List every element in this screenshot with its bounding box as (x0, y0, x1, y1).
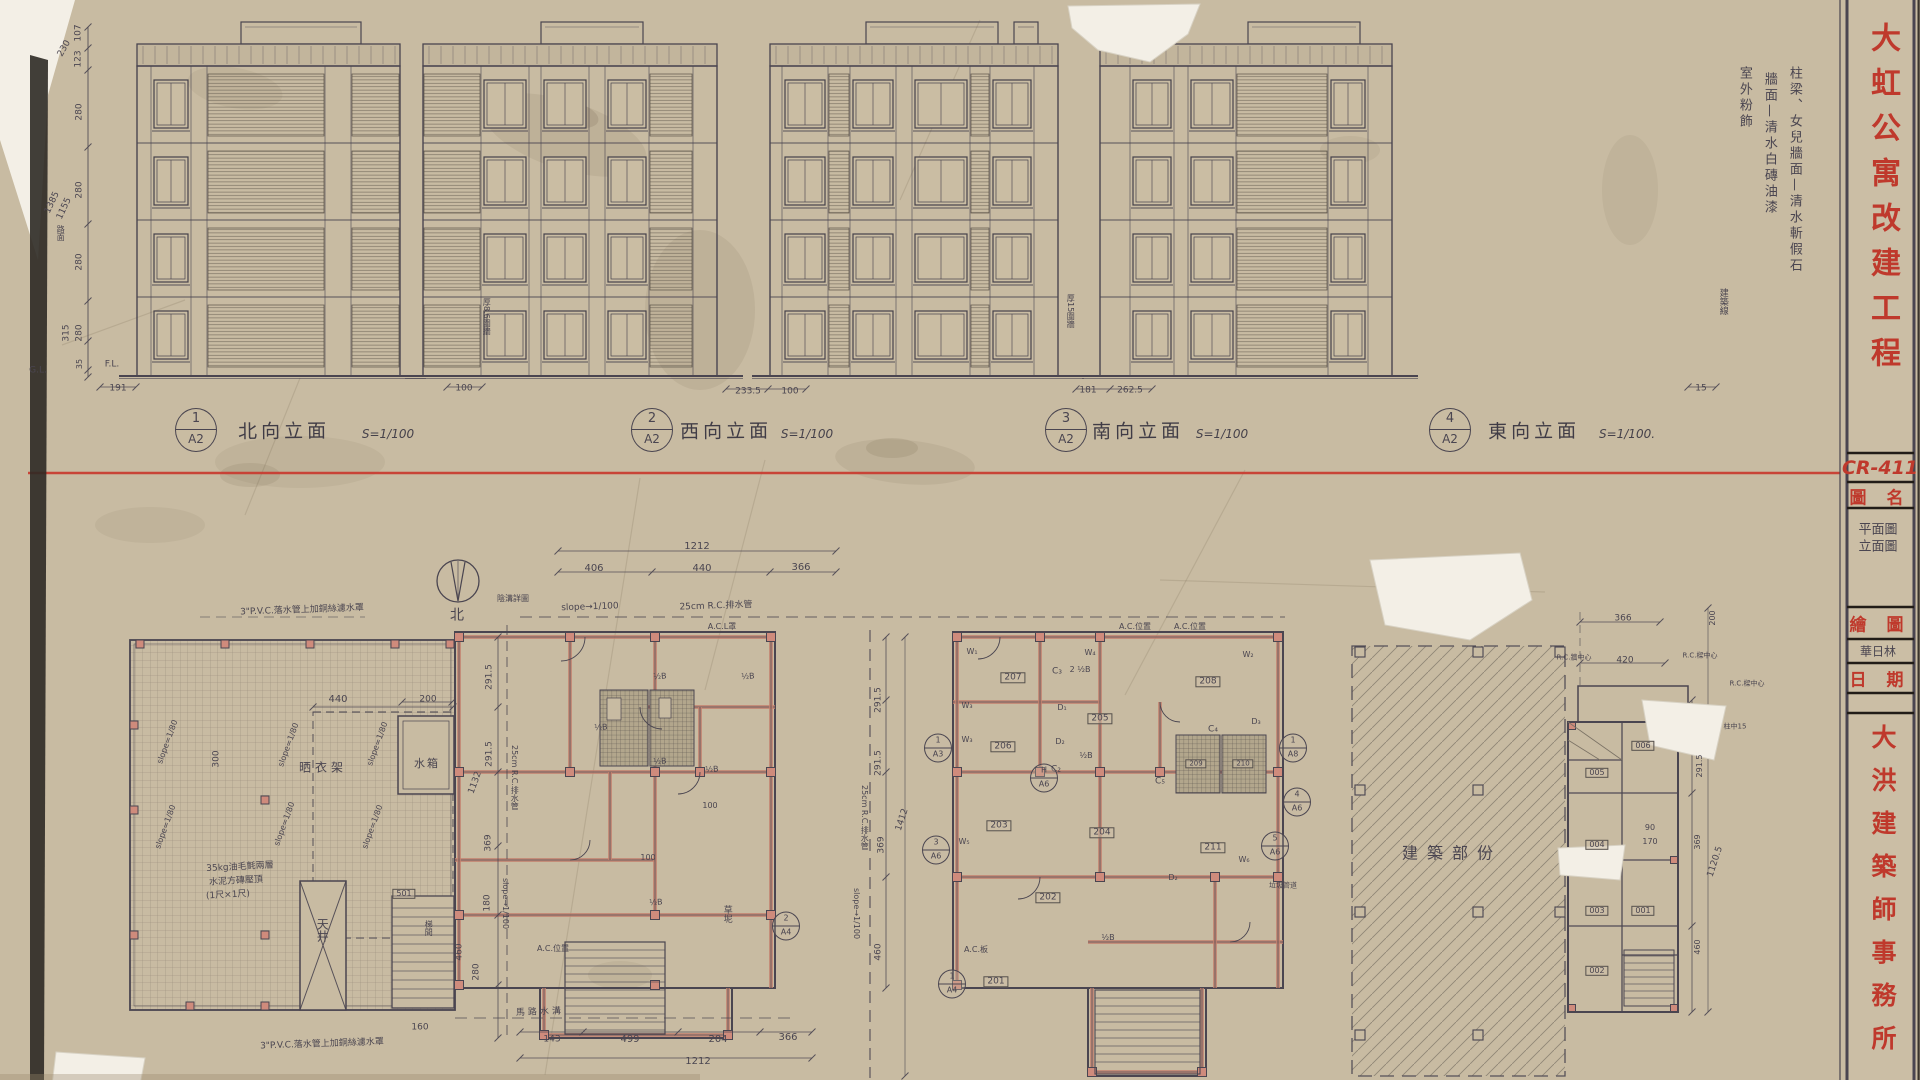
annotation: W₃ (961, 736, 972, 744)
annotation: 柱中15 (1724, 723, 1747, 730)
project-title: 大虹公寓改建工程 (1860, 22, 1904, 382)
annotation: 25cm R.C.排水管 (860, 785, 868, 850)
annotation: 369 (877, 836, 886, 853)
annotation: 路面 (56, 225, 64, 241)
annotation: W₁ (966, 648, 977, 656)
annotation: 208 (1195, 676, 1220, 687)
annotation: 207 (1000, 672, 1025, 683)
annotation: 北 (450, 609, 464, 624)
annotation: 460 (455, 943, 464, 960)
annotation: 206 (990, 741, 1015, 752)
section-marker: 1A8 (1279, 734, 1307, 763)
annotation: G.L. (29, 366, 47, 375)
annotation: slope→1/100 (852, 888, 860, 939)
annotation: 1120.5 (1707, 846, 1726, 879)
annotation: 107 (74, 24, 83, 41)
annotation: 203 (986, 820, 1011, 831)
annotation: 天井 (316, 918, 329, 942)
finish-note: 牆面—清水白磚油漆 (1762, 72, 1776, 216)
section-marker: 1A3 (924, 734, 952, 763)
date-label: 日 期 (1850, 666, 1911, 691)
section-marker: 2A4 (772, 912, 800, 941)
annotation: 160 (411, 1023, 428, 1032)
section-marker: 4A6 (1283, 788, 1311, 817)
annotation: 366 (791, 563, 810, 574)
annotation: (1尺×1尺) (206, 890, 250, 902)
annotation: 1212 (685, 1057, 710, 1068)
annotation: 002 (1585, 966, 1608, 976)
annotation: 1412 (895, 808, 911, 833)
annotation: 440 (328, 695, 347, 706)
annotation: 369 (1694, 834, 1702, 849)
annotation: slope=1/80 (361, 804, 385, 850)
annotation: D₂ (1168, 874, 1177, 882)
annotation: 馬路水溝 (516, 1007, 564, 1018)
annotation: 204 (708, 1035, 727, 1046)
annotation: W₃ (961, 702, 972, 710)
annotation: 004 (1585, 840, 1608, 850)
annotation: ½B (653, 757, 667, 766)
annotation: 2 ½B (1070, 666, 1091, 674)
annotation: 201 (983, 976, 1008, 987)
annotation: 211 (1200, 842, 1225, 853)
annotation: R.C.牆中心 (1557, 654, 1592, 661)
annotation: slope=1/80 (366, 721, 390, 767)
annotation: slope→1/100 (561, 602, 619, 613)
annotation: 280 (75, 253, 84, 270)
annotation: 369 (484, 834, 493, 851)
annotation: 100 (640, 854, 655, 862)
annotation: ½B (1079, 752, 1092, 760)
annotation: slope=1/80 (277, 722, 301, 768)
firm-name: 大洪建築師事務所 (1864, 724, 1900, 1068)
finish-note: 柱梁、女兒牆面—清水斬假石 (1787, 66, 1801, 274)
annotation: 501 (392, 889, 415, 899)
annotation: C₄ (1208, 725, 1218, 734)
annotation: ½B (741, 672, 755, 681)
annotation: A.C.位置 (1174, 623, 1206, 631)
annotation: C₃ (1052, 667, 1062, 676)
annotation: 191 (109, 384, 126, 393)
annotation: 水箱 (414, 758, 440, 770)
annotation: 006 (1631, 741, 1654, 751)
annotation: 233.5 (735, 387, 761, 396)
annotation: 205 (1087, 713, 1112, 724)
elevation-title: 東向立面 (1488, 416, 1580, 444)
annotation: 15 (1695, 384, 1706, 393)
annotation: D₁ (1057, 704, 1066, 712)
annotation: 204 (1089, 827, 1114, 838)
annotation: 366 (778, 1033, 797, 1044)
annotation: 420 (1616, 656, 1633, 665)
annotation: 35 (76, 359, 84, 369)
annotation: slope=1/80 (156, 719, 180, 765)
annotation: 143 (543, 1035, 560, 1044)
annotation: 厚15圍牆 (1066, 294, 1074, 328)
annotation: ½B (594, 723, 608, 732)
annotation: 25cm R.C.排水管 (510, 745, 518, 810)
annotation: ½B (705, 765, 719, 774)
section-marker: HA6 (1030, 764, 1058, 793)
section-marker: 3A6 (922, 836, 950, 865)
finish-note: 室外粉飾 (1737, 66, 1751, 130)
annotation: 460 (874, 943, 883, 960)
annotation: R.C.樑中心 (1730, 680, 1765, 687)
annotation: 厚8.6圍牆 (482, 298, 490, 335)
elevation-title: 南向立面 (1092, 416, 1184, 444)
annotation: ½B (653, 672, 667, 681)
annotation: 001 (1631, 906, 1654, 916)
drawing-name-label: 圖 名 (1850, 484, 1911, 509)
annotation: 25cm R.C.排水管 (679, 601, 752, 613)
annotation: F.L. (105, 360, 119, 369)
section-marker: 5A6 (1261, 832, 1289, 861)
annotation: ½B (649, 898, 663, 907)
annotation: 291.5 (485, 741, 494, 767)
annotation: 210 (1232, 759, 1253, 768)
annotation: 280 (472, 963, 481, 980)
drawing-name-value-2: 立面圖 (1858, 536, 1897, 555)
annotation: 3"P.V.C.落水管上加銅絲濾水罩 (260, 1038, 384, 1052)
elevation-tag: 2A2 (631, 408, 673, 452)
annotation: 291.5 (874, 687, 883, 713)
annotation: W₂ (1242, 651, 1253, 659)
annotation: 499 (620, 1035, 639, 1046)
annotation: slope=1/80 (154, 804, 178, 850)
annotation: C₅ (1155, 777, 1165, 786)
annotation: 209 (1185, 759, 1206, 768)
annotation: A.C.位置 (1119, 623, 1151, 631)
annotation: 440 (692, 564, 711, 575)
annotation: 460 (1694, 939, 1702, 954)
annotation: 123 (74, 50, 83, 67)
annotation: 建築部份 (1402, 846, 1502, 863)
annotation: 300 (212, 750, 221, 767)
annotation: 垃圾管道 (1269, 882, 1297, 889)
blueprint-sheet: 1071232302802801385115528031528035G.L.F.… (0, 0, 1920, 1080)
drawing-number: CR-411 (1842, 457, 1918, 479)
annotation: 100 (455, 384, 472, 393)
annotation: 291.5 (874, 750, 883, 776)
annotation: D₃ (1251, 718, 1260, 726)
annotation: W₅ (958, 838, 969, 846)
elevation-tag: 3A2 (1045, 408, 1087, 452)
annotation: slope=1/80 (273, 801, 297, 847)
annotation: 草坭 (721, 905, 730, 923)
annotation: slope→1/100 (501, 878, 509, 929)
annotation: 100 (781, 387, 798, 396)
section-marker: 1A4 (938, 970, 966, 999)
annotation: 180 (483, 894, 492, 911)
annotation: 建築線 (1717, 288, 1726, 315)
annotation: 1132 (468, 771, 485, 796)
elevation-scale: S=1/100 (781, 427, 833, 441)
annotation: 005 (1585, 768, 1608, 778)
annotation: D₂ (1055, 738, 1064, 746)
annotation: 35kg油毛氈兩層 (206, 862, 274, 875)
annotation: ½B (1101, 934, 1114, 942)
elevation-tag: 1A2 (175, 408, 217, 452)
annotation: A.C.位置 (537, 945, 569, 953)
annotation: 90 (1645, 824, 1655, 832)
elevation-scale: S=1/100. (1599, 427, 1655, 441)
annotation: 晒衣架 (299, 762, 347, 775)
elevation-title: 西向立面 (680, 416, 772, 444)
annotation: 280 (75, 324, 84, 341)
annotation: A.C.L罩 (708, 623, 736, 631)
annotation: 406 (584, 564, 603, 575)
annotation: W₄ (1084, 649, 1095, 657)
annotation: 291.5 (485, 664, 494, 690)
annotation: 陰溝詳圖 (497, 595, 529, 603)
annotation: 100 (702, 802, 717, 810)
annotation: 181 (1079, 386, 1096, 395)
annotation: 262.5 (1117, 386, 1143, 395)
annotation: 315 (62, 324, 71, 341)
drafter-value: 華日林 (1860, 643, 1896, 660)
annotation: 202 (1035, 892, 1060, 903)
annotation: 梯間 (424, 920, 432, 936)
annotation: 170 (1642, 838, 1657, 846)
annotation: 280 (75, 103, 84, 120)
annotation: 366 (1614, 614, 1631, 623)
annotation: 3"P.V.C.落水管上加銅絲濾水罩 (240, 604, 364, 618)
annotation: 1212 (684, 542, 709, 553)
elevation-tag: 4A2 (1429, 408, 1471, 452)
elevation-scale: S=1/100 (362, 427, 414, 441)
annotation: R.C.樑中心 (1683, 652, 1718, 659)
annotation: 230 (57, 39, 74, 59)
annotation: 003 (1585, 906, 1608, 916)
annotation-layer: 1071232302802801385115528031528035G.L.F.… (0, 0, 1920, 1080)
annotation: 200 (1709, 610, 1717, 625)
annotation: 水泥方磚壓頂 (209, 876, 263, 888)
drafter-label: 繪 圖 (1850, 611, 1911, 636)
annotation: 280 (75, 181, 84, 198)
annotation: W₆ (1238, 856, 1249, 864)
elevation-scale: S=1/100 (1196, 427, 1248, 441)
annotation: 291.5 (1696, 755, 1704, 778)
annotation: A.C.板 (964, 946, 988, 954)
elevation-title: 北向立面 (238, 416, 330, 444)
annotation: 200 (419, 695, 436, 704)
